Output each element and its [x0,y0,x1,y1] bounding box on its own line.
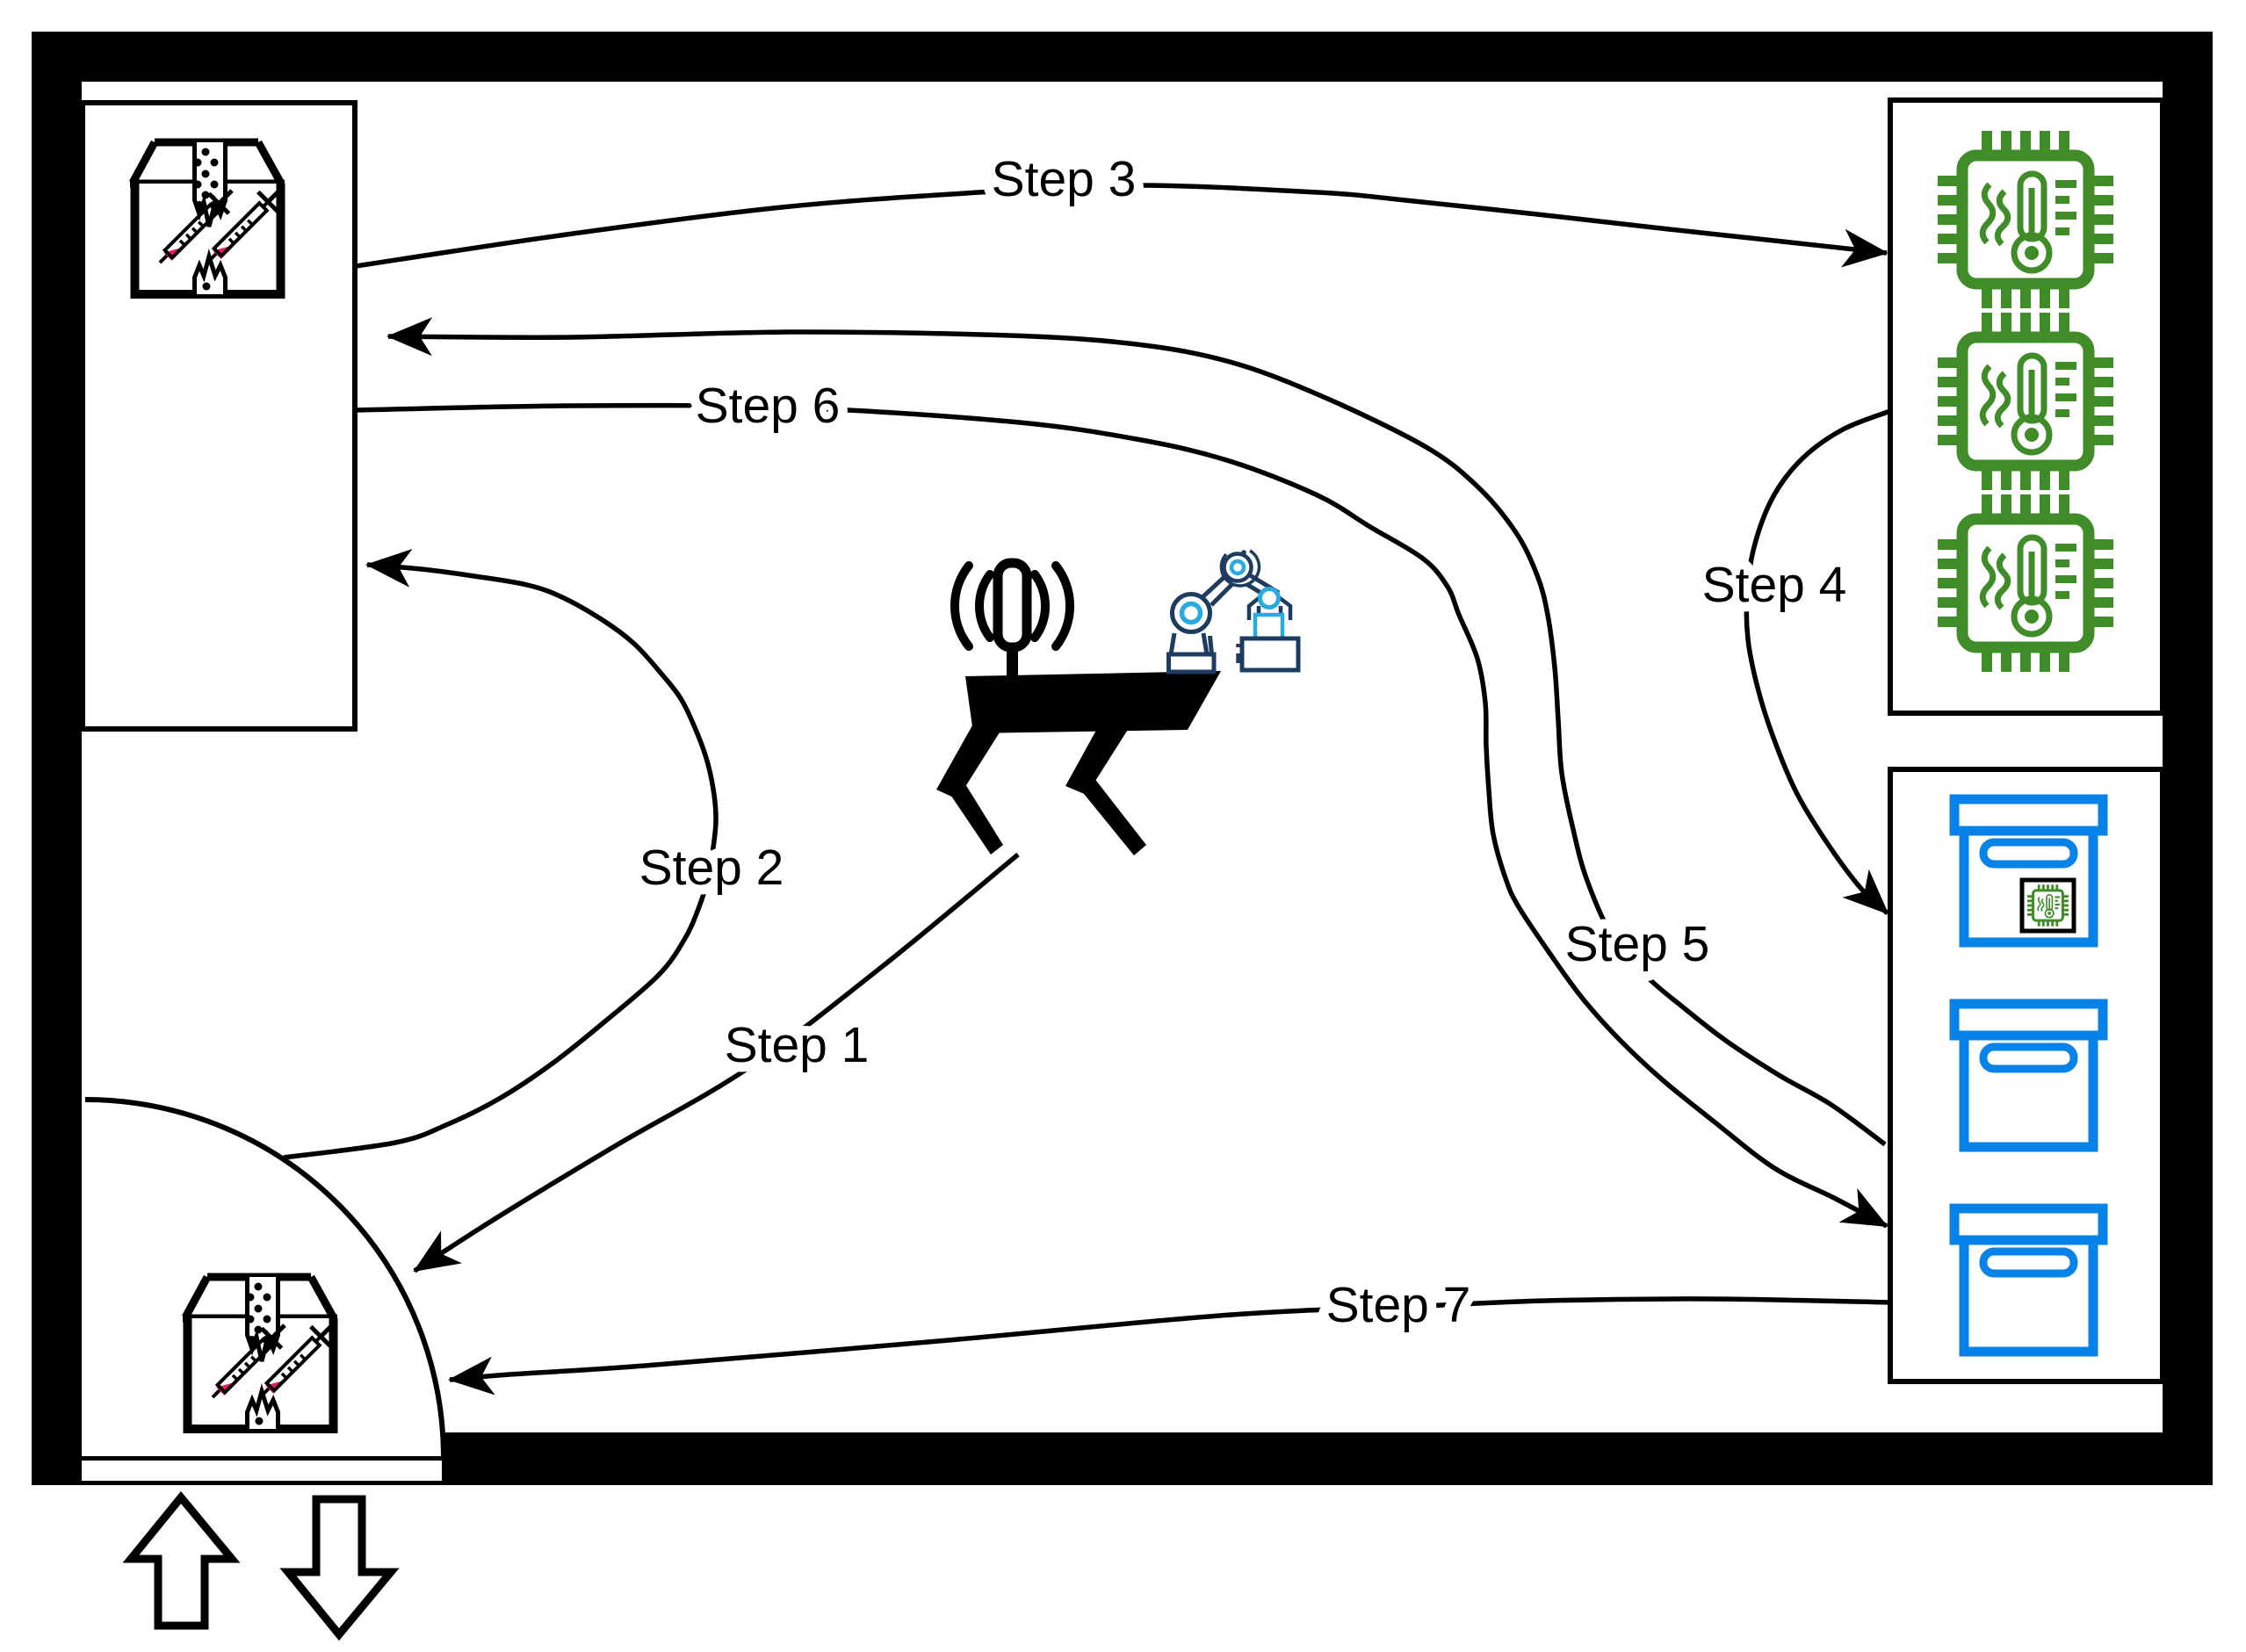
svg-text:Step 6: Step 6 [696,378,841,434]
svg-text:Step 5: Step 5 [1565,916,1710,972]
svg-text:Step 4: Step 4 [1702,557,1847,613]
svg-text:Step 3: Step 3 [992,151,1137,207]
svg-text:Step 2: Step 2 [639,840,784,896]
svg-text:Step 1: Step 1 [725,1017,870,1073]
svg-text:Step 7: Step 7 [1326,1277,1471,1333]
